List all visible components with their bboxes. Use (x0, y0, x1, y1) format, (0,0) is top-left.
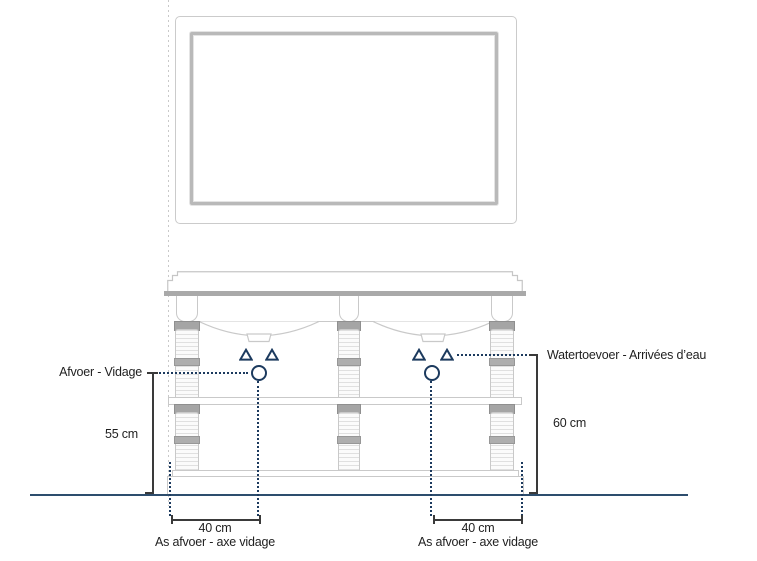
dimension-55-label: 55 cm (58, 428, 138, 442)
dimension-60-line (536, 354, 538, 494)
drain-label: Afvoer - Vidage (22, 366, 142, 380)
drain-circle-icon (251, 365, 267, 381)
leg-upper-right (489, 296, 515, 398)
leg-lower-left (174, 404, 200, 471)
water-supply-triangle-icon (440, 348, 454, 361)
floor-line (30, 494, 688, 496)
sink-bowl-right (373, 321, 493, 345)
dimension-60-top-tick (529, 354, 537, 356)
drain-axis-right (430, 381, 432, 516)
water-supply-triangle-icon (412, 348, 426, 361)
leg-upper-left (174, 296, 200, 398)
drain-axis-caption-left: As afvoer - axe vidage (139, 536, 291, 550)
leg-lower-middle (337, 404, 361, 471)
leg-upper-middle (337, 296, 361, 398)
installation-diagram: Afvoer - Vidage Watertoevoer - Arrivées … (0, 0, 757, 561)
sink-bowl-left (199, 321, 319, 345)
leg-lower-right (489, 404, 515, 471)
water-supply-triangle-icon (265, 348, 279, 361)
supply-leader-line (457, 354, 535, 356)
drain-leader-line (156, 372, 248, 374)
cabinet-edge-axis-right (521, 462, 523, 516)
water-supply-triangle-icon (239, 348, 253, 361)
mirror-glass (190, 32, 498, 205)
drain-axis-caption-right: As afvoer - axe vidage (402, 536, 554, 550)
drain-circle-icon (424, 365, 440, 381)
drain-axis-left (257, 381, 259, 516)
plinth-base (167, 476, 524, 495)
dimension-55-top-tick (147, 372, 158, 374)
dimension-60-bottom-tick (529, 492, 537, 494)
dimension-40-left-label: 40 cm (165, 522, 265, 536)
dimension-55-line (152, 372, 154, 494)
dimension-40-right-label: 40 cm (428, 522, 528, 536)
cabinet-edge-axis-left (169, 462, 171, 516)
supply-label: Watertoevoer - Arrivées d’eau (547, 349, 706, 363)
wall-guide-line (168, 0, 169, 506)
dimension-55-bottom-tick (145, 492, 153, 494)
countertop (167, 271, 523, 292)
dimension-60-label: 60 cm (553, 417, 586, 431)
mirror-frame (175, 16, 517, 224)
